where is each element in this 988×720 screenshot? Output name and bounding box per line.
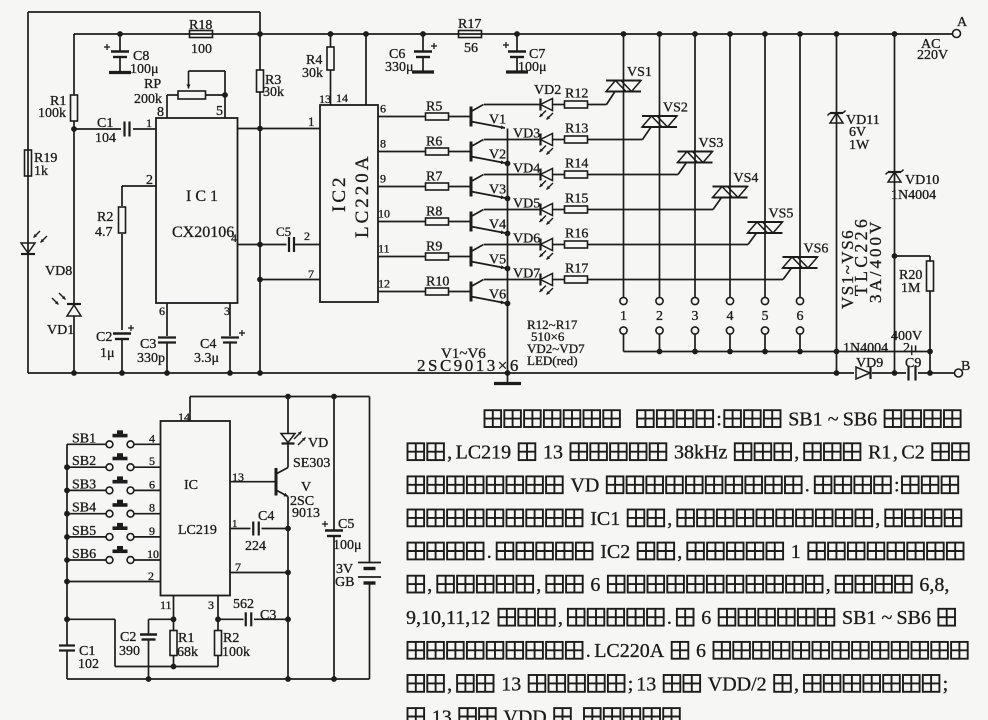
svg-text:C3: C3 — [260, 608, 276, 623]
svg-text:R17: R17 — [458, 17, 481, 32]
svg-text:IC2: IC2 — [600, 541, 630, 563]
svg-text:10: 10 — [147, 547, 159, 561]
svg-text:3: 3 — [208, 598, 214, 612]
svg-text:LC220A: LC220A — [352, 154, 373, 239]
svg-text:5: 5 — [149, 454, 155, 468]
svg-text:,: , — [558, 607, 563, 629]
svg-text:A: A — [957, 15, 968, 30]
svg-text:68k: 68k — [177, 645, 198, 660]
svg-text:R5: R5 — [426, 100, 442, 115]
svg-text:VD6: VD6 — [513, 232, 540, 247]
svg-text:6,8,: 6,8, — [919, 574, 949, 596]
svg-text:12: 12 — [378, 277, 390, 291]
svg-text:VD9: VD9 — [856, 356, 883, 371]
svg-text:7: 7 — [308, 267, 314, 281]
svg-text:1: 1 — [146, 116, 152, 130]
svg-text:6: 6 — [696, 640, 706, 662]
svg-text:10: 10 — [378, 207, 390, 221]
svg-text:R12: R12 — [565, 87, 588, 102]
svg-text:2: 2 — [656, 309, 663, 324]
svg-text:SB1: SB1 — [788, 409, 822, 431]
svg-text:B: B — [961, 359, 970, 374]
svg-text:100: 100 — [191, 42, 212, 57]
svg-text:R10: R10 — [426, 275, 449, 290]
svg-text:4.7: 4.7 — [95, 225, 113, 240]
svg-text:V: V — [301, 480, 311, 495]
svg-text:VDD: VDD — [503, 706, 546, 720]
svg-text:2μ: 2μ — [903, 341, 918, 356]
svg-text:R18: R18 — [189, 18, 212, 33]
svg-text:38kHz: 38kHz — [674, 442, 727, 464]
svg-text:SB5: SB5 — [72, 524, 96, 539]
svg-text:3: 3 — [224, 304, 230, 318]
svg-text:IC1: IC1 — [186, 188, 222, 205]
svg-text:R6: R6 — [426, 135, 442, 150]
svg-text:VS5: VS5 — [769, 207, 794, 222]
svg-text:SB6: SB6 — [843, 409, 877, 431]
svg-text:,: , — [574, 706, 579, 720]
svg-text:~: ~ — [882, 607, 893, 629]
svg-text:3: 3 — [692, 309, 699, 324]
svg-text:6: 6 — [797, 309, 804, 324]
svg-text:VD5: VD5 — [513, 197, 540, 212]
svg-text:V1: V1 — [489, 113, 506, 128]
svg-text:562: 562 — [233, 597, 254, 612]
svg-text:104: 104 — [95, 131, 116, 146]
svg-text:11: 11 — [378, 242, 390, 256]
svg-text:LC219: LC219 — [178, 523, 217, 538]
svg-text:V2: V2 — [489, 148, 506, 163]
svg-text:VD: VD — [308, 436, 328, 451]
svg-text:6: 6 — [159, 304, 165, 318]
svg-text:,: , — [427, 574, 432, 596]
svg-text:R13: R13 — [565, 122, 588, 137]
svg-text:2SC9013×6: 2SC9013×6 — [417, 356, 521, 375]
svg-text:IC2: IC2 — [329, 175, 350, 213]
svg-text:R2: R2 — [223, 631, 239, 646]
svg-text:;: ; — [628, 673, 634, 695]
svg-text:LED(red): LED(red) — [527, 353, 578, 368]
svg-text:.: . — [667, 607, 672, 629]
svg-text:C1: C1 — [97, 116, 113, 131]
svg-text:SB3: SB3 — [72, 477, 96, 492]
svg-text:1N4004: 1N4004 — [891, 188, 936, 203]
svg-text:SB6: SB6 — [897, 607, 931, 629]
svg-text:14: 14 — [336, 91, 348, 105]
svg-text:VDD/2: VDD/2 — [708, 673, 767, 695]
svg-text:1: 1 — [232, 518, 238, 530]
svg-text:LC220A: LC220A — [594, 640, 665, 662]
svg-text:1: 1 — [308, 114, 315, 129]
svg-text:C5: C5 — [338, 517, 354, 532]
svg-text:,: , — [447, 673, 452, 695]
svg-text:IC1: IC1 — [590, 508, 620, 530]
svg-text:4: 4 — [149, 431, 155, 445]
svg-text:100μ: 100μ — [130, 62, 159, 77]
svg-text:C2: C2 — [901, 442, 924, 464]
svg-text:VS4: VS4 — [734, 171, 759, 186]
svg-text:330p: 330p — [137, 351, 165, 366]
svg-text:C5: C5 — [276, 224, 291, 239]
svg-text:224: 224 — [245, 539, 266, 554]
svg-text:1: 1 — [620, 309, 627, 324]
svg-text:,: , — [667, 508, 672, 530]
svg-text:C9: C9 — [905, 356, 921, 371]
svg-text:13: 13 — [432, 706, 452, 720]
svg-text:SB4: SB4 — [72, 501, 96, 516]
svg-text:.: . — [586, 640, 591, 662]
svg-text:SE303: SE303 — [293, 456, 330, 471]
svg-text:56: 56 — [464, 41, 478, 56]
svg-text:4: 4 — [231, 231, 237, 245]
svg-text:SB2: SB2 — [72, 454, 96, 469]
svg-text:30k: 30k — [302, 66, 323, 81]
svg-text:13: 13 — [636, 673, 656, 695]
svg-text:R15: R15 — [565, 192, 588, 207]
svg-text:100k: 100k — [38, 106, 66, 121]
svg-text:R17: R17 — [565, 262, 588, 277]
svg-text:VD4: VD4 — [513, 162, 540, 177]
svg-text:SB1: SB1 — [842, 607, 876, 629]
svg-text:VD3: VD3 — [513, 127, 540, 142]
svg-text:2: 2 — [304, 229, 310, 243]
svg-text:220V: 220V — [917, 48, 948, 63]
svg-text:6: 6 — [149, 477, 155, 491]
svg-text:C2: C2 — [120, 630, 136, 645]
svg-text:SB6: SB6 — [72, 547, 96, 562]
svg-text:30k: 30k — [263, 85, 284, 100]
svg-text:VS6: VS6 — [804, 242, 829, 257]
svg-text:R2: R2 — [97, 210, 113, 225]
svg-text:,: , — [536, 574, 541, 596]
svg-text:RP: RP — [144, 77, 161, 92]
svg-text:8: 8 — [380, 137, 386, 151]
svg-text:9,10,11,12: 9,10,11,12 — [406, 607, 490, 629]
svg-text:R16: R16 — [565, 227, 588, 242]
svg-text:9: 9 — [149, 524, 155, 538]
svg-text:SB1: SB1 — [72, 431, 96, 446]
svg-text:VD7: VD7 — [513, 267, 540, 282]
svg-text:C4: C4 — [200, 337, 216, 352]
svg-text:C2: C2 — [96, 330, 112, 345]
svg-text:100μ: 100μ — [333, 538, 362, 553]
svg-text:5: 5 — [762, 309, 769, 324]
svg-text:13: 13 — [543, 442, 563, 464]
svg-text:,: , — [826, 574, 831, 596]
svg-text:VD10: VD10 — [905, 173, 939, 188]
svg-text:V6: V6 — [489, 288, 506, 303]
svg-text:,: , — [794, 673, 799, 695]
svg-text:VS1: VS1 — [627, 65, 652, 80]
svg-text:,: , — [893, 442, 898, 464]
svg-text:1: 1 — [791, 541, 801, 563]
svg-text:13: 13 — [501, 673, 521, 695]
svg-text:330μ: 330μ — [385, 60, 414, 75]
svg-text:VD8: VD8 — [45, 264, 72, 279]
svg-text:R9: R9 — [426, 240, 442, 255]
svg-text:100μ: 100μ — [518, 60, 547, 75]
svg-text:C4: C4 — [258, 509, 274, 524]
svg-text:,: , — [794, 442, 799, 464]
svg-text:VD1: VD1 — [47, 323, 74, 338]
svg-text:R1: R1 — [178, 631, 194, 646]
svg-text:9013: 9013 — [292, 506, 320, 521]
svg-text:6: 6 — [590, 574, 600, 596]
svg-text:3A/400V: 3A/400V — [866, 219, 885, 303]
svg-text:R1: R1 — [868, 442, 891, 464]
svg-text:11: 11 — [160, 598, 172, 612]
svg-text:,: , — [875, 508, 880, 530]
svg-text::: : — [716, 409, 722, 431]
svg-text:VS3: VS3 — [699, 136, 724, 151]
svg-text:3.3μ: 3.3μ — [194, 351, 219, 366]
svg-text:R8: R8 — [426, 205, 442, 220]
svg-text:CX20106: CX20106 — [172, 224, 234, 241]
svg-text:.: . — [805, 475, 810, 497]
svg-text:102: 102 — [78, 657, 99, 672]
svg-text:VS2: VS2 — [663, 101, 688, 116]
svg-text:V3: V3 — [489, 183, 506, 198]
svg-text:5: 5 — [216, 104, 223, 119]
svg-text:GB: GB — [335, 575, 354, 590]
svg-text:V5: V5 — [489, 253, 506, 268]
svg-text:R14: R14 — [565, 157, 588, 172]
svg-text:.: . — [683, 706, 688, 720]
svg-text::: : — [894, 475, 900, 497]
svg-text:2: 2 — [148, 569, 154, 583]
svg-text:VD2: VD2 — [534, 83, 561, 98]
svg-text:13: 13 — [319, 92, 331, 106]
svg-text:7: 7 — [235, 560, 241, 574]
svg-text:4: 4 — [727, 309, 734, 324]
svg-text:IC: IC — [184, 478, 198, 493]
svg-text:VD: VD — [570, 475, 599, 497]
svg-text:1μ: 1μ — [100, 346, 115, 361]
svg-text:C3: C3 — [140, 337, 156, 352]
svg-text:~: ~ — [828, 409, 839, 431]
svg-text:.: . — [487, 541, 492, 563]
svg-text:;: ; — [943, 673, 949, 695]
svg-text:R7: R7 — [426, 170, 442, 185]
svg-text:1M: 1M — [901, 281, 921, 296]
svg-text:1W: 1W — [849, 138, 870, 153]
svg-text:LC219: LC219 — [456, 442, 512, 464]
svg-text:13: 13 — [232, 470, 244, 484]
svg-text:6: 6 — [701, 607, 711, 629]
svg-text:V4: V4 — [489, 218, 506, 233]
svg-text:8: 8 — [149, 501, 155, 515]
svg-text:1k: 1k — [34, 164, 48, 179]
svg-text:,: , — [447, 442, 452, 464]
svg-text:9: 9 — [380, 172, 386, 186]
svg-text:6: 6 — [380, 102, 386, 116]
svg-text:390: 390 — [119, 644, 140, 659]
svg-text:1N4004: 1N4004 — [843, 341, 888, 356]
svg-text:,: , — [677, 541, 682, 563]
svg-text:100k: 100k — [222, 645, 250, 660]
